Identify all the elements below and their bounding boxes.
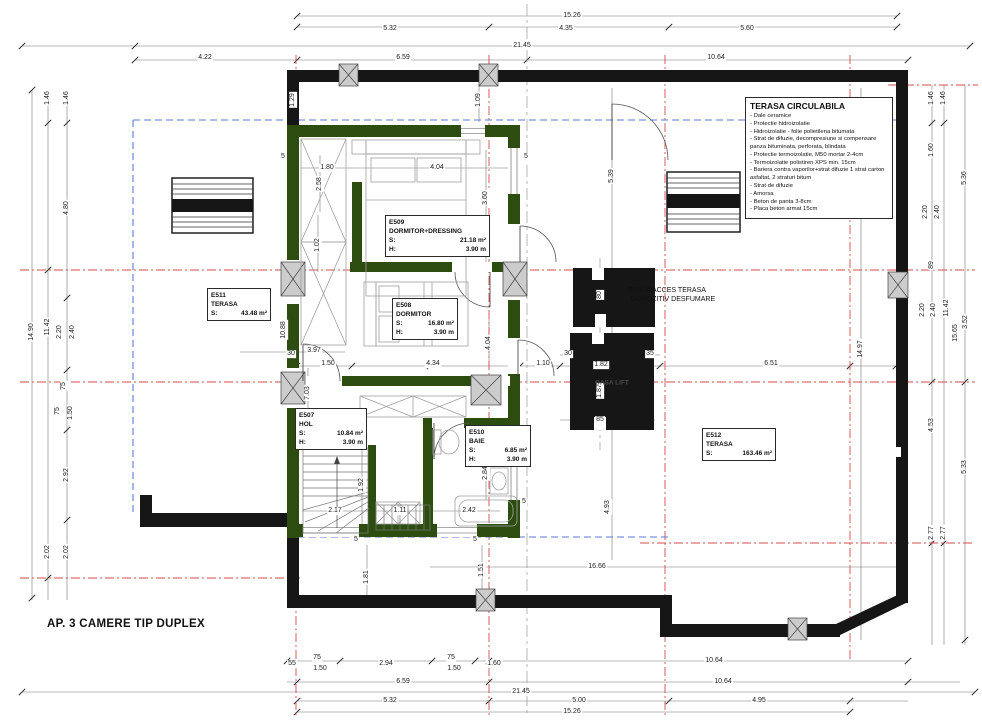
dimension-label: 2.02: [44, 544, 52, 560]
dimension-label: 5: [353, 536, 359, 544]
terrace-note-line: - Protectie hidroizolatie: [750, 121, 888, 129]
dimension-label: 3.52: [962, 314, 970, 330]
dimension-label: 2.20: [919, 302, 927, 318]
dimension-label: 1.02: [314, 237, 322, 253]
height-value: 3.90 m: [507, 455, 527, 464]
dimension-label: 3.97: [306, 347, 322, 355]
area-value: 10.84 m²: [337, 429, 363, 438]
dimension-label: 10.64: [713, 678, 733, 686]
dimension-label: 5: [521, 498, 527, 506]
area-value: 6.85 m²: [505, 446, 527, 455]
area-value: 43.48 m²: [241, 309, 267, 318]
terrace-note-line: - Placa beton armat 15cm: [750, 206, 888, 214]
terrace-note-line: - Bariera contra vaporilor+strat difuzie…: [750, 167, 888, 183]
dimension-label: 1.09: [475, 92, 483, 108]
height-label: H:: [396, 328, 403, 337]
terrace-note-line: - Strat de difuzie, decompresiune si com…: [750, 136, 888, 152]
dimension-label: 1.60: [486, 660, 502, 668]
area-label: S:: [299, 429, 306, 438]
dimension-label: 75: [60, 381, 68, 391]
terrace-note-line: - Termoizolatie polistiren XPS min. 15cm: [750, 160, 888, 168]
dimension-label: 21.45: [512, 42, 532, 50]
dimension-label: 1.29: [289, 92, 297, 108]
height-label: H:: [469, 455, 476, 464]
room-label-e511: E511 TERASA S:43.48 m²: [207, 288, 271, 321]
dimension-label: 4.22: [197, 54, 213, 62]
skylight-louver-right: [667, 172, 740, 232]
dimension-label: 5.32: [382, 697, 398, 705]
room-label-e508: E508 DORMITOR S:16.80 m² H:3.90 m: [392, 298, 458, 340]
dimension-label: 6.59: [395, 678, 411, 686]
dimension-label: 2.20: [56, 324, 64, 340]
terrace-note-line: - Dale ceramice: [750, 113, 888, 121]
room-id: E512: [706, 431, 772, 440]
dimension-label: 4.04: [485, 335, 493, 351]
dimension-label: 16.66: [587, 563, 607, 571]
dimension-label: 1.82: [593, 361, 609, 369]
trapa-note-line1: TRAPA ACCES TERASA: [628, 286, 715, 295]
dimension-label: 1.50: [320, 360, 336, 368]
dimension-label: 2.92: [63, 467, 71, 483]
dimension-label: 1.50: [67, 405, 75, 421]
dimension-label: 5.33: [961, 459, 969, 475]
lift-label: CASA LIFT: [595, 380, 629, 387]
room-name: HOL: [299, 420, 363, 429]
room-id: E511: [211, 291, 267, 300]
terrace-note-line: - Protectie termoizolatie, M50 mortar 2-…: [750, 152, 888, 160]
stairs: [303, 448, 430, 533]
dimension-label: 6.51: [763, 360, 779, 368]
dimension-label: 75: [312, 654, 322, 662]
trapa-note: TRAPA ACCES TERASA -DISPOZITIV DESFUMARE: [628, 286, 715, 305]
dimension-label: 4.35: [558, 25, 574, 33]
dimension-label: 4.53: [928, 417, 936, 433]
room-label-e510: E510 BAIE S:6.85 m² H:3.90 m: [465, 425, 531, 467]
terrace-note-lines: - Dale ceramice- Protectie hidroizolatie…: [750, 113, 888, 214]
area-label: S:: [706, 449, 713, 458]
area-value: 163.46 m²: [742, 449, 772, 458]
dimension-label: 1.50: [446, 665, 462, 673]
dimension-label: 10.88: [280, 320, 288, 340]
corridor-closet: [360, 396, 466, 417]
dimension-label: 75: [54, 406, 62, 416]
dimension-label: 14.97: [857, 339, 865, 359]
sink: [490, 468, 508, 494]
dimension-label: 2.84: [482, 465, 490, 481]
dimension-label: 2.40: [934, 204, 942, 220]
dimension-label: 1.51: [478, 562, 486, 578]
terrace-note-line: - Strat de difuzie: [750, 183, 888, 191]
page-title: AP. 3 CAMERE TIP DUPLEX: [47, 618, 205, 630]
dimension-label: 2.77: [928, 525, 936, 541]
height-value: 3.90 m: [434, 328, 454, 337]
dimension-label: 4.80: [63, 200, 71, 216]
terrace-note-line: - Amorsa: [750, 191, 888, 199]
dimension-label: 1.46: [940, 90, 948, 106]
dimension-label: 1.10: [535, 360, 551, 368]
room-name: BAIE: [469, 437, 527, 446]
terrace-note-line: - Hidroizolatie - folie polietilena bitu…: [750, 129, 888, 137]
dimension-label: 1.50: [312, 665, 328, 673]
room-label-e507: E507 HOL S:10.84 m² H:3.90 m: [295, 408, 367, 450]
dimension-label: 11.42: [943, 299, 951, 318]
room-name: TERASA: [211, 300, 267, 309]
dimension-label: 15.26: [562, 12, 582, 20]
dimension-label: 85: [595, 416, 605, 424]
dimension-label: 15.26: [562, 708, 582, 716]
dimension-label: 5: [523, 153, 529, 161]
dimension-label: 1.92: [358, 477, 366, 493]
dimension-label: 2.42: [461, 507, 477, 515]
room-id: E510: [469, 428, 527, 437]
room-label-e512: E512 TERASA S:163.46 m²: [702, 428, 776, 461]
dimension-label: 4.04: [429, 164, 445, 172]
dimension-label: 5: [472, 536, 478, 544]
room-name: DORMITOR: [396, 310, 454, 319]
room-id: E508: [396, 301, 454, 310]
dimension-label: 55: [287, 660, 297, 668]
dimension-label: 2.40: [930, 302, 938, 318]
dimension-label: 4.34: [425, 360, 441, 368]
dimension-label: 5.39: [608, 168, 616, 184]
dimension-label: 5.32: [382, 25, 398, 33]
dimension-label: 30: [286, 350, 296, 358]
skylight-louver-left: [172, 178, 253, 233]
dimension-label: 15.65: [952, 323, 960, 343]
dimension-label: 2.02: [63, 544, 71, 560]
dimension-label: 1.80: [319, 164, 335, 172]
dimension-label: 80: [596, 290, 604, 300]
room-id: E509: [389, 218, 486, 227]
dimension-label: 2.77: [940, 525, 948, 541]
height-value: 3.90 m: [466, 245, 486, 254]
height-label: H:: [389, 245, 396, 254]
dimension-label: 1.46: [63, 90, 71, 106]
dimension-label: 6.59: [395, 54, 411, 62]
dimension-label: 35: [645, 350, 655, 358]
dimension-label: 5.00: [571, 697, 587, 705]
dimension-label: 1.60: [928, 142, 936, 158]
dimension-label: 1.11: [392, 507, 407, 515]
room-name: TERASA: [706, 440, 772, 449]
area-label: S:: [211, 309, 218, 318]
room-label-e509: E509 DORMITOR+DRESSING S:21.18 m² H:3.90…: [385, 215, 490, 257]
dimension-label: 1.46: [928, 90, 936, 106]
terrace-note-box: TERASA CIRCULABILA - Dale ceramice- Prot…: [745, 97, 893, 219]
dimension-label: 5.36: [961, 170, 969, 186]
terrace-note-line: - Beton de panta 3-8cm: [750, 199, 888, 207]
dimension-label: 89: [928, 260, 936, 270]
dimension-label: 75: [446, 654, 456, 662]
area-label: S:: [396, 319, 403, 328]
area-value: 21.18 m²: [460, 236, 486, 245]
dimension-label: 5: [280, 153, 286, 161]
dimension-label: 21.45: [511, 688, 531, 696]
dimension-label: 1.81: [363, 569, 371, 585]
room-name: DORMITOR+DRESSING: [389, 227, 486, 236]
height-value: 3.90 m: [343, 438, 363, 447]
terrace-note-title: TERASA CIRCULABILA: [750, 101, 888, 111]
floor-plan-canvas: 15.265.324.355.6021.454.226.5910.6455751…: [0, 0, 982, 720]
dimension-label: 14.90: [28, 322, 36, 342]
dimension-label: 2.94: [378, 660, 394, 668]
trapa-note-line2: -DISPOZITIV DESFUMARE: [628, 295, 715, 304]
dimension-label: 2.40: [69, 324, 77, 340]
dimension-label: 30: [563, 350, 573, 358]
dimension-label: 10.64: [704, 657, 724, 665]
dimension-label: 2.58: [316, 176, 324, 192]
area-label: S:: [389, 236, 396, 245]
dimension-label: 7.03: [304, 385, 312, 401]
dimension-label: 10.64: [706, 54, 726, 62]
dimension-label: 2.20: [922, 204, 930, 220]
dimension-label: 5.60: [739, 25, 755, 33]
dimension-label: 2.17: [327, 507, 343, 515]
dimension-label: 4.93: [604, 499, 612, 515]
dimension-label: 4.95: [751, 697, 767, 705]
dimension-label: 3.60: [482, 190, 490, 206]
toilet: [433, 430, 459, 454]
area-label: S:: [469, 446, 476, 455]
room-id: E507: [299, 411, 363, 420]
area-value: 16.80 m²: [428, 319, 454, 328]
height-label: H:: [299, 438, 306, 447]
dimension-label: 11.42: [44, 318, 52, 337]
dimension-label: 1.46: [44, 90, 52, 106]
